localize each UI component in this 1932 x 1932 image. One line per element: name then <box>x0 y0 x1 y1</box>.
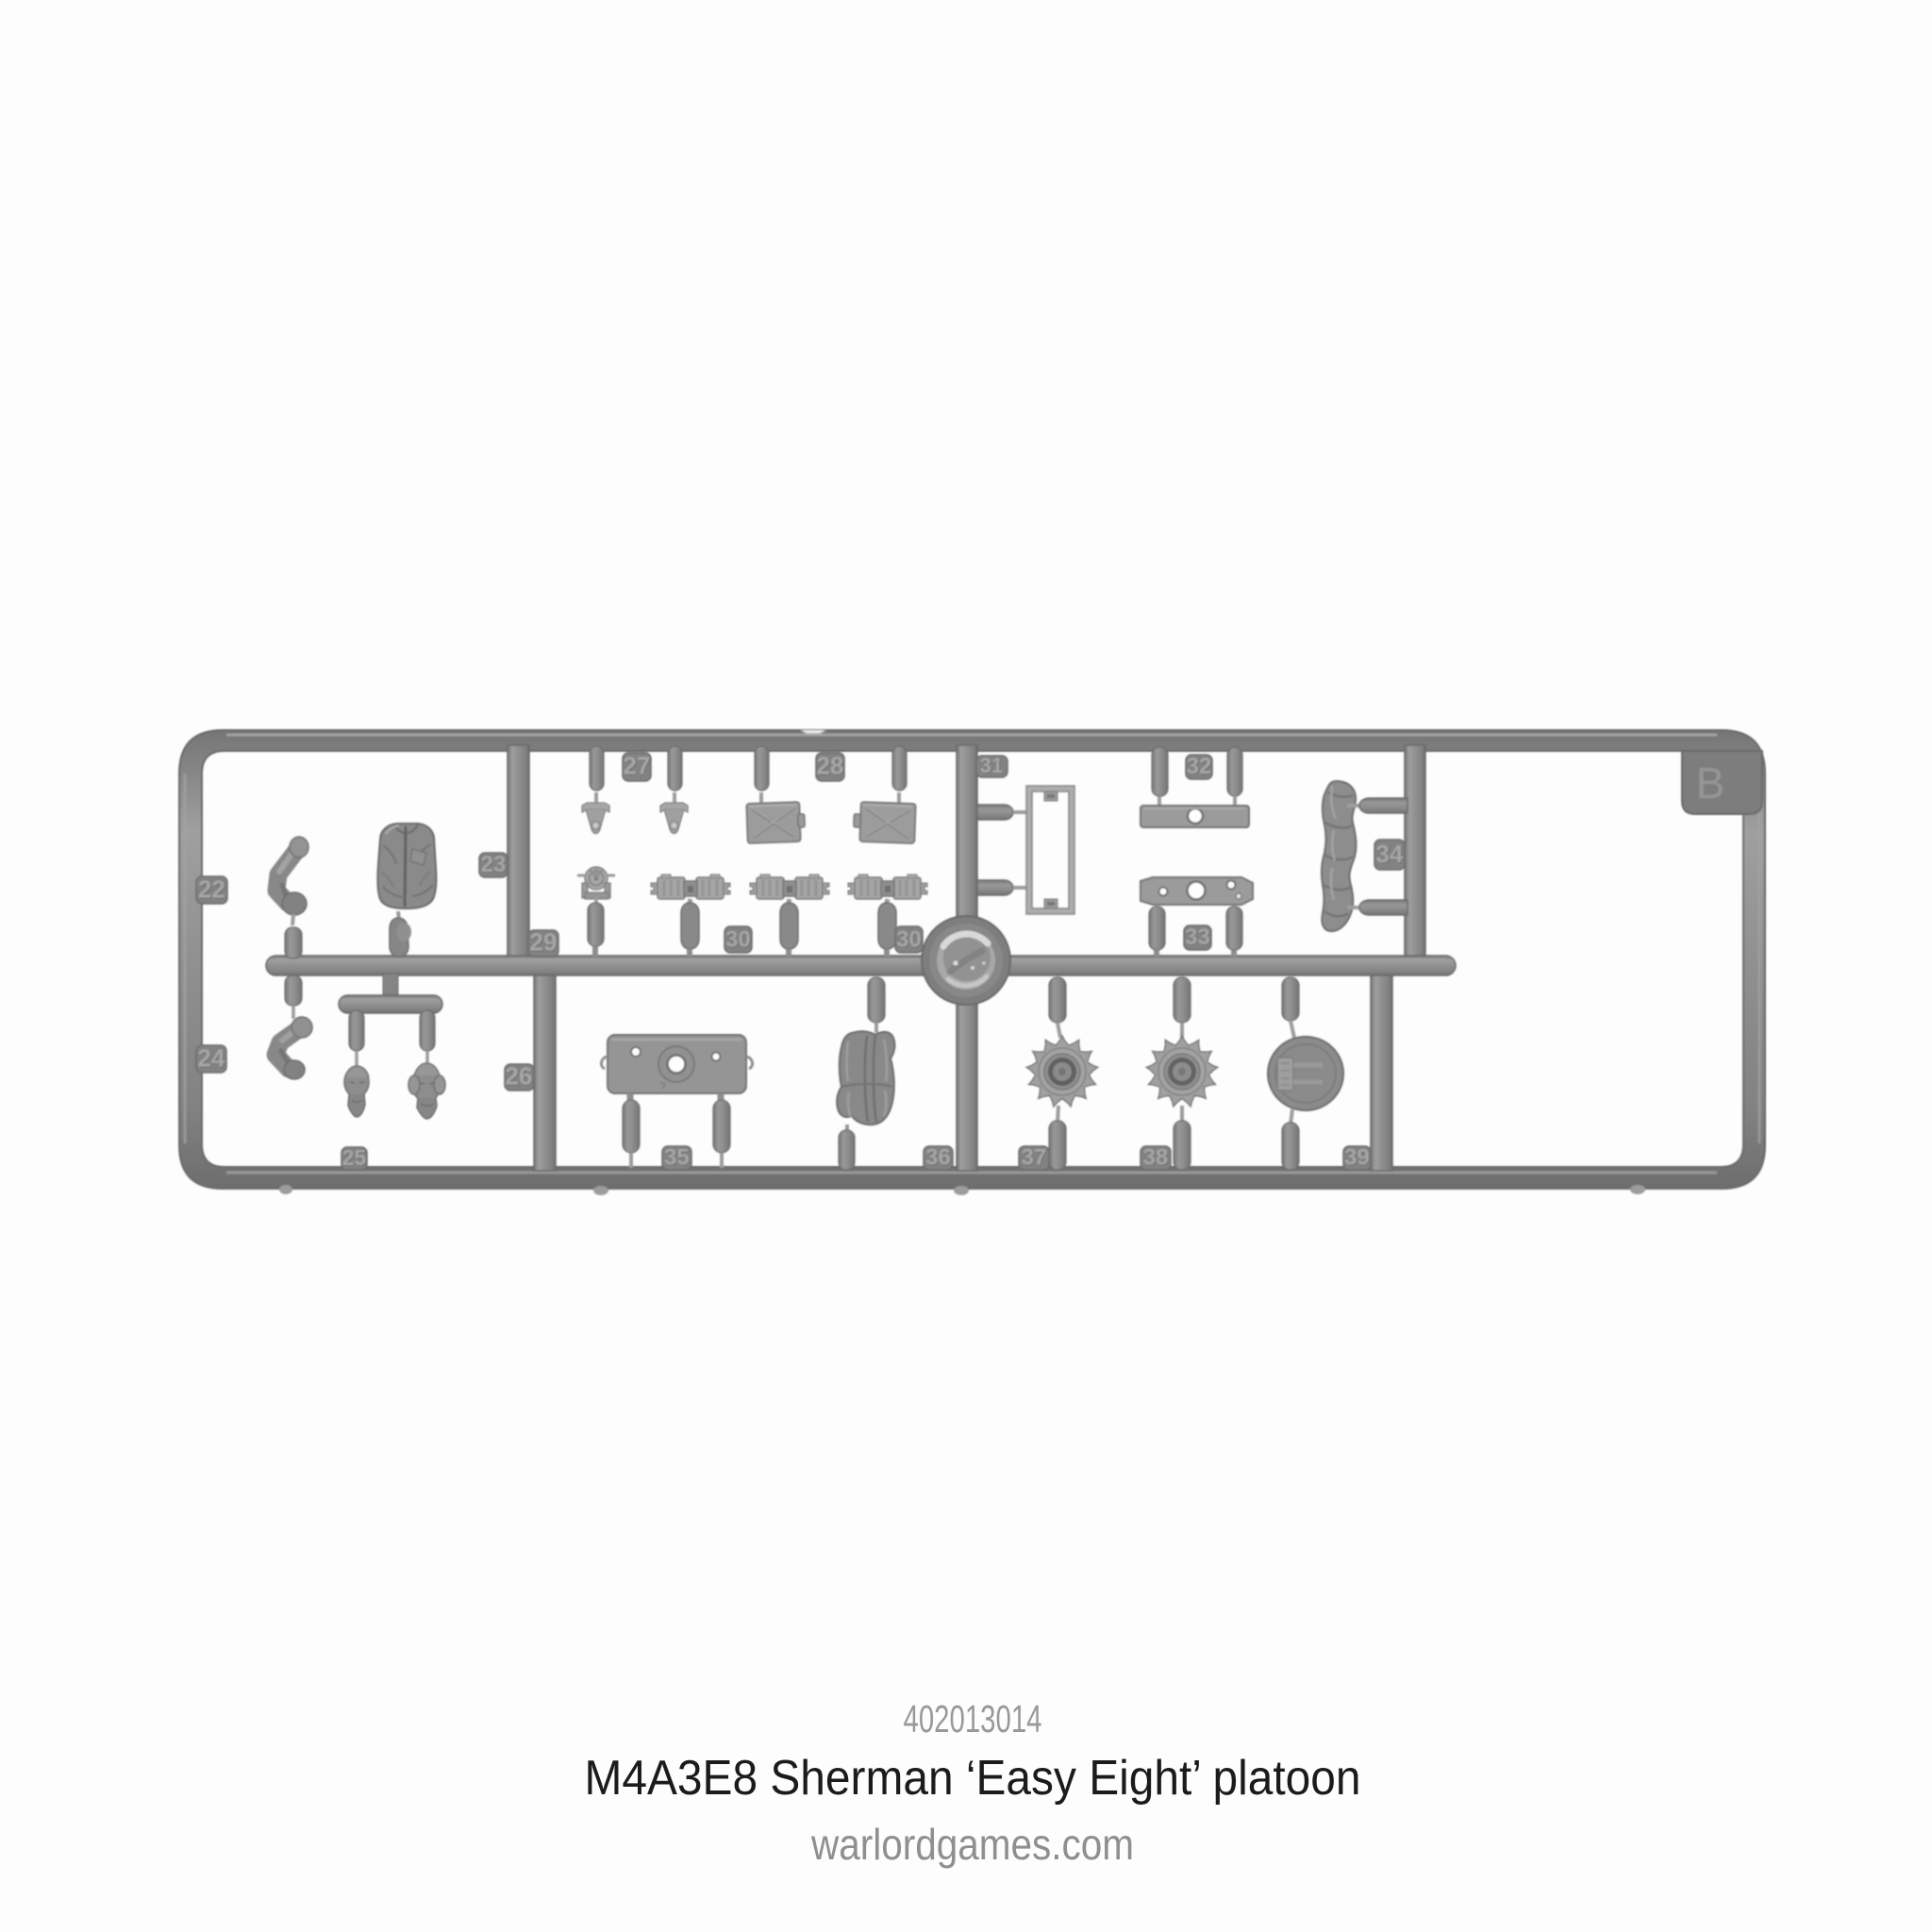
svg-text:30: 30 <box>896 927 922 953</box>
svg-text:38: 38 <box>1143 1145 1169 1171</box>
svg-text:32: 32 <box>1187 754 1212 779</box>
svg-text:29: 29 <box>530 928 558 957</box>
svg-text:24: 24 <box>198 1044 225 1073</box>
svg-text:22: 22 <box>198 875 225 904</box>
svg-text:31: 31 <box>980 754 1003 777</box>
svg-text:34: 34 <box>1376 840 1404 868</box>
svg-text:23: 23 <box>481 852 507 877</box>
svg-text:33: 33 <box>1185 924 1210 950</box>
svg-text:M4A3E8 Sherman ‘Easy Eight’ pl: M4A3E8 Sherman ‘Easy Eight’ platoon <box>585 1751 1361 1806</box>
svg-text:27: 27 <box>624 752 651 780</box>
svg-text:30: 30 <box>725 927 751 953</box>
svg-text:35: 35 <box>664 1145 690 1171</box>
svg-text:36: 36 <box>925 1145 951 1171</box>
svg-text:39: 39 <box>1344 1145 1370 1171</box>
svg-text:28: 28 <box>817 752 844 780</box>
svg-text:37: 37 <box>1022 1145 1047 1171</box>
svg-text:25: 25 <box>342 1145 367 1170</box>
svg-text:warlordgames.com: warlordgames.com <box>810 1820 1134 1869</box>
svg-text:B: B <box>1696 758 1725 808</box>
svg-text:26: 26 <box>506 1062 533 1091</box>
svg-text:402013014: 402013014 <box>904 1697 1042 1740</box>
